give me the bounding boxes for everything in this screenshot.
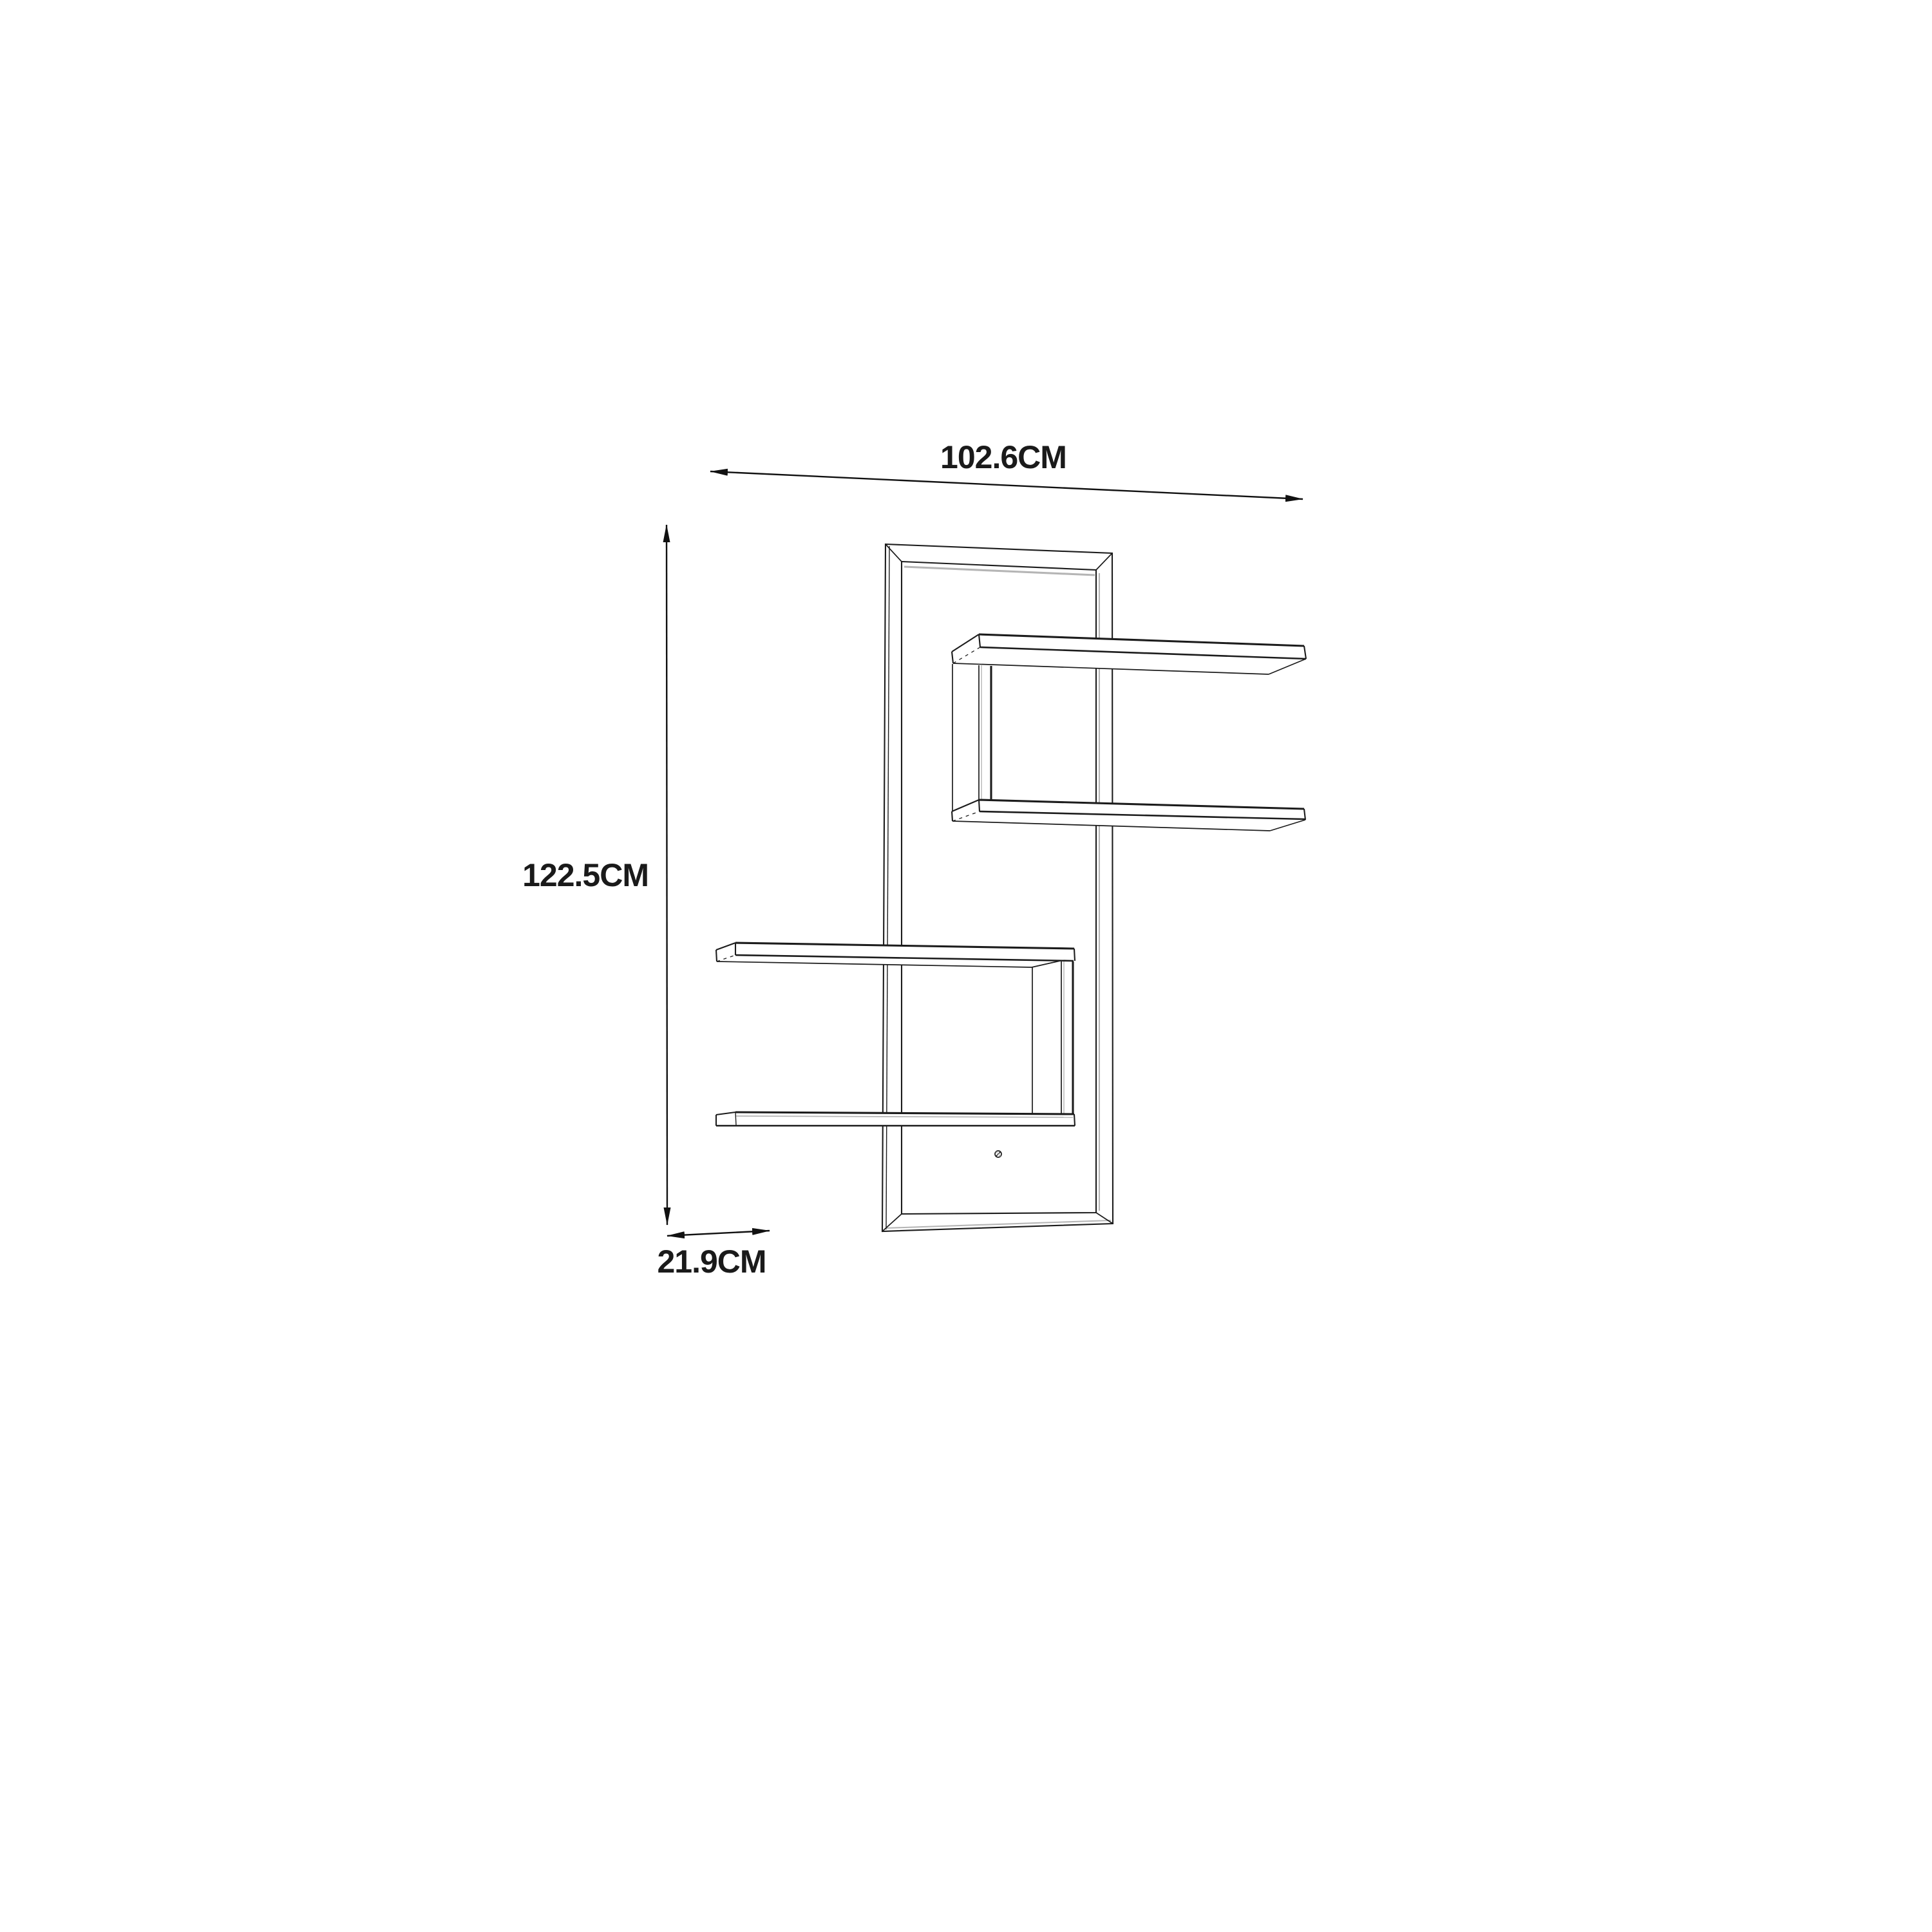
width-dimension-label: 102.6CM xyxy=(940,441,1066,473)
upper-side-panel xyxy=(952,664,991,811)
shelf-line-drawing xyxy=(0,0,1932,1932)
dimension-diagram: 102.6CM 122.5CM 21.9CM xyxy=(0,0,1932,1932)
lower-side-panel xyxy=(1032,961,1073,1114)
upper-top-shelf xyxy=(952,634,1306,674)
depth-dimension-label: 21.9CM xyxy=(657,1245,766,1278)
height-dimension-label: 122.5CM xyxy=(522,859,649,891)
screw-mark xyxy=(995,1151,1001,1157)
lower-top-shelf xyxy=(716,943,1075,967)
upper-bottom-shelf xyxy=(952,800,1305,831)
lower-shelf-assembly xyxy=(716,943,1075,1126)
height-dimension-arrow xyxy=(667,525,667,1225)
lower-bottom-shelf xyxy=(716,1112,1075,1126)
depth-dimension-arrow xyxy=(667,1231,770,1236)
width-dimension-arrow xyxy=(710,471,1303,499)
upper-shelf-assembly xyxy=(952,634,1306,831)
